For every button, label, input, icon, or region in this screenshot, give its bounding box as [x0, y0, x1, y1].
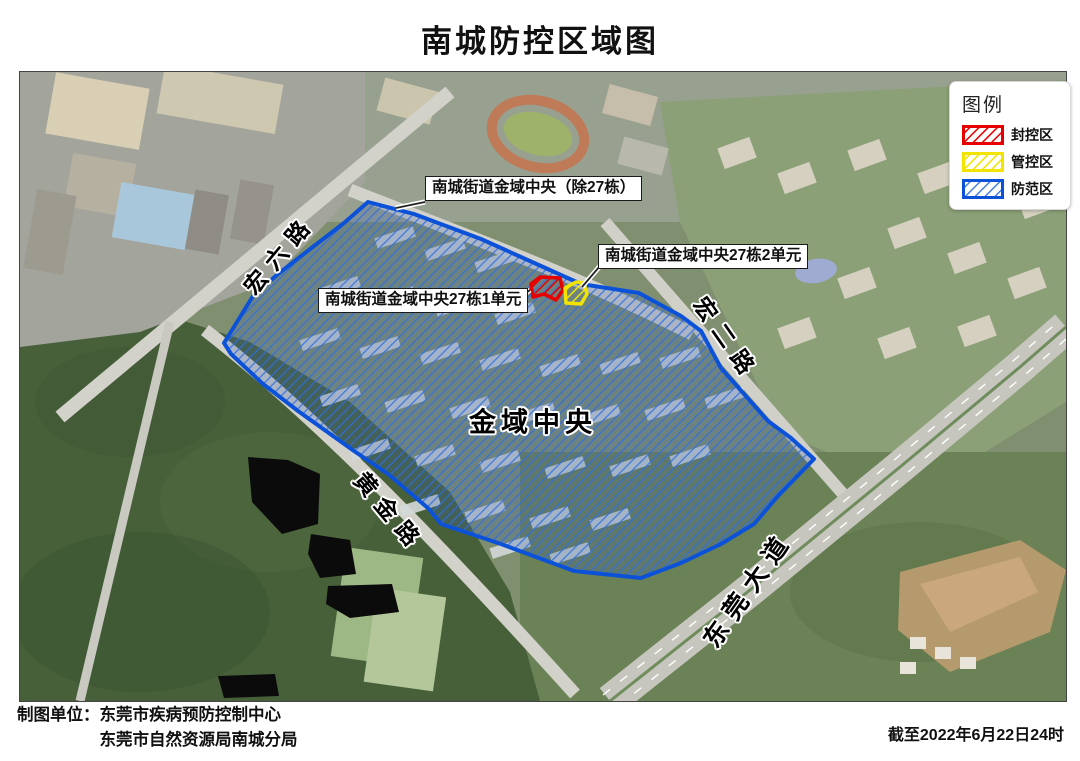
page-title: 南城防控区域图: [0, 16, 1080, 61]
callout-estate-except-27: 南城街道金域中央（除27栋）: [425, 176, 642, 201]
legend-item-prevention: 防范区: [962, 179, 1064, 199]
legend-label-control: 管控区: [1011, 152, 1053, 172]
callout-building27-unit2: 南城街道金域中央27栋2单元: [598, 244, 808, 269]
map-image: 南城街道金域中央（除27栋） 南城街道金域中央27栋2单元 南城街道金域中央27…: [19, 71, 1067, 702]
satellite-base: [20, 72, 1066, 701]
legend: 图例 封控区 管控区: [949, 81, 1071, 210]
lockdown-swatch-icon: [962, 125, 1004, 145]
prevention-swatch-icon: [962, 179, 1004, 199]
credits-label: 制图单位：: [17, 703, 100, 753]
area-label-jinyu-central: 金域中央: [469, 401, 597, 440]
legend-item-lockdown: 封控区: [962, 125, 1064, 145]
credits-line-1: 东莞市疾病预防控制中心: [100, 703, 298, 728]
page: 南城防控区域图: [0, 0, 1080, 761]
legend-item-control: 管控区: [962, 152, 1064, 172]
callout-building27-unit1: 南城街道金域中央27栋1单元: [318, 288, 528, 313]
legend-label-prevention: 防范区: [1011, 179, 1053, 199]
control-swatch-icon: [962, 152, 1004, 172]
credits: 制图单位： 东莞市疾病预防控制中心 东莞市自然资源局南城分局: [17, 703, 298, 753]
legend-label-lockdown: 封控区: [1011, 125, 1053, 145]
legend-title: 图例: [962, 90, 1064, 117]
cutoff-date: 截至2022年6月22日24时: [888, 721, 1064, 745]
credits-line-2: 东莞市自然资源局南城分局: [100, 728, 298, 753]
lockdown-zone-polygon: [531, 277, 563, 300]
